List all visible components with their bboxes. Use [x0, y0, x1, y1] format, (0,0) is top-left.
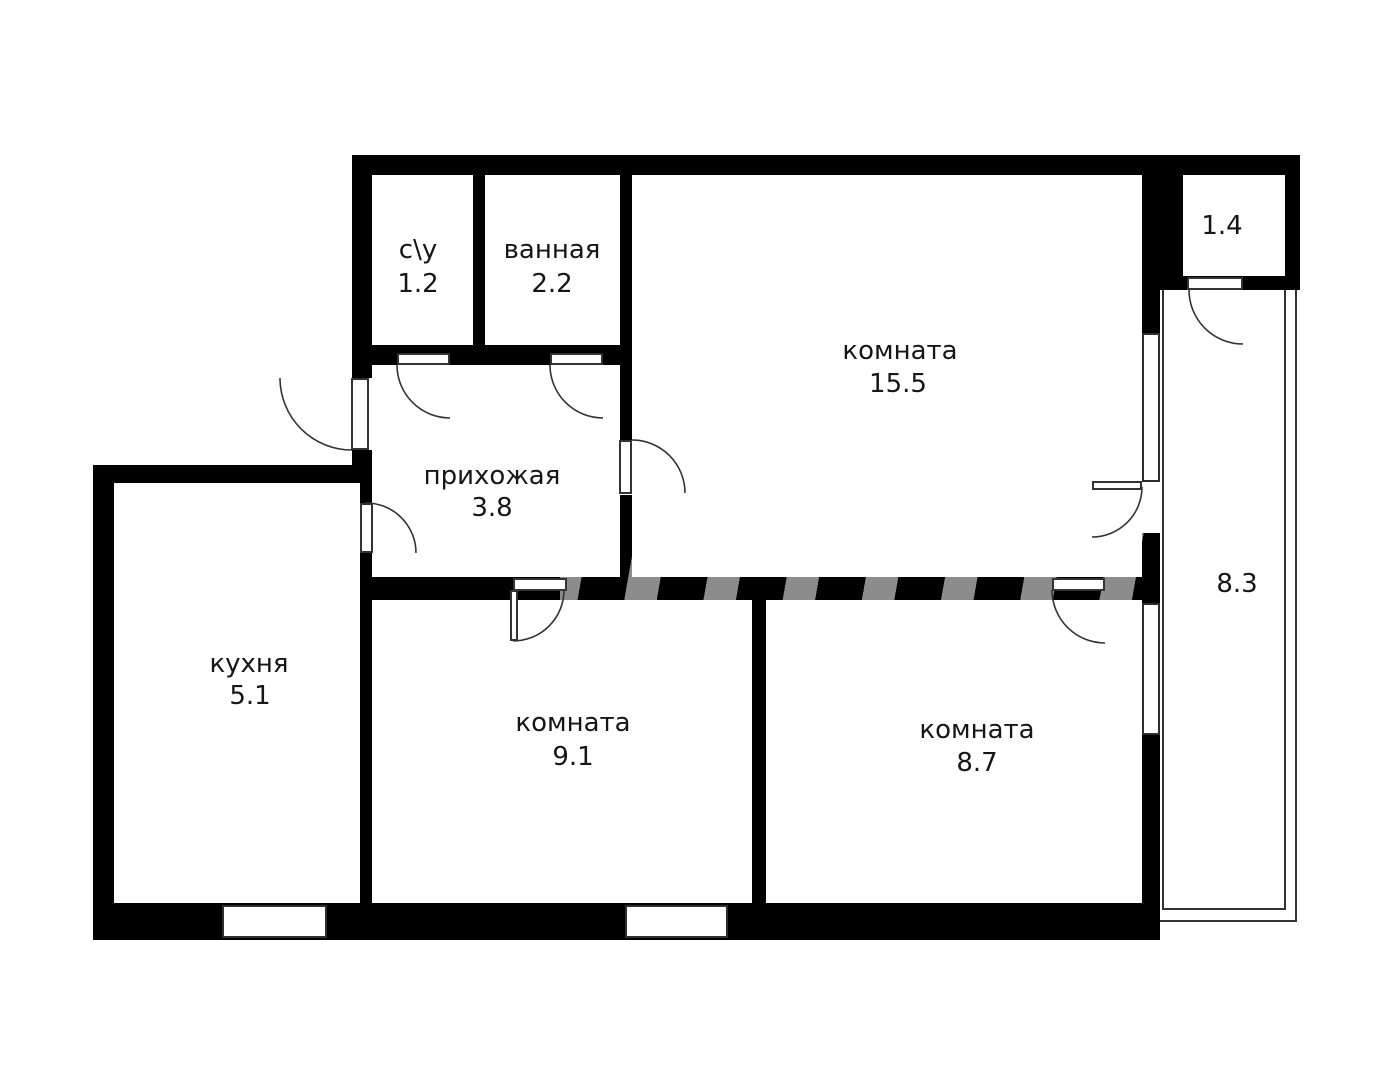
- door-arcs: [0, 0, 1398, 1080]
- kitchen-door-arc: [366, 503, 416, 553]
- storage-balcony-door-arc: [1189, 290, 1243, 344]
- room-main-area: 15.5: [869, 369, 927, 399]
- kitchen-label: кухня: [209, 649, 288, 679]
- room-middle-label: комната: [515, 708, 630, 738]
- storage-area: 1.4: [1201, 211, 1242, 241]
- wc-area: 1.2: [397, 269, 438, 299]
- hallway-label: прихожая: [424, 461, 561, 491]
- hallway-area: 3.8: [471, 493, 512, 523]
- room91-door-arc: [513, 590, 564, 641]
- wc-label: с\у: [399, 235, 437, 265]
- room-main-label: комната: [842, 336, 957, 366]
- entrance-door-arc: [280, 378, 352, 450]
- room87-door-arc: [1052, 590, 1105, 643]
- wc-door-arc: [397, 365, 450, 418]
- balcony-area: 8.3: [1216, 569, 1257, 599]
- bathroom-label: ванная: [504, 235, 601, 265]
- room-right-label: комната: [919, 715, 1034, 745]
- room-right-area: 8.7: [956, 748, 997, 778]
- floor-plan: с\у 1.2 ванная 2.2 комната 15.5 1.4 прих…: [0, 0, 1398, 1080]
- kitchen-area: 5.1: [229, 681, 270, 711]
- hallway-room15-door-arc: [632, 440, 685, 493]
- bathroom-door-arc: [550, 365, 603, 418]
- bathroom-area: 2.2: [531, 269, 572, 299]
- room15-balcony-door-arc: [1092, 487, 1142, 537]
- room-middle-area: 9.1: [552, 742, 593, 772]
